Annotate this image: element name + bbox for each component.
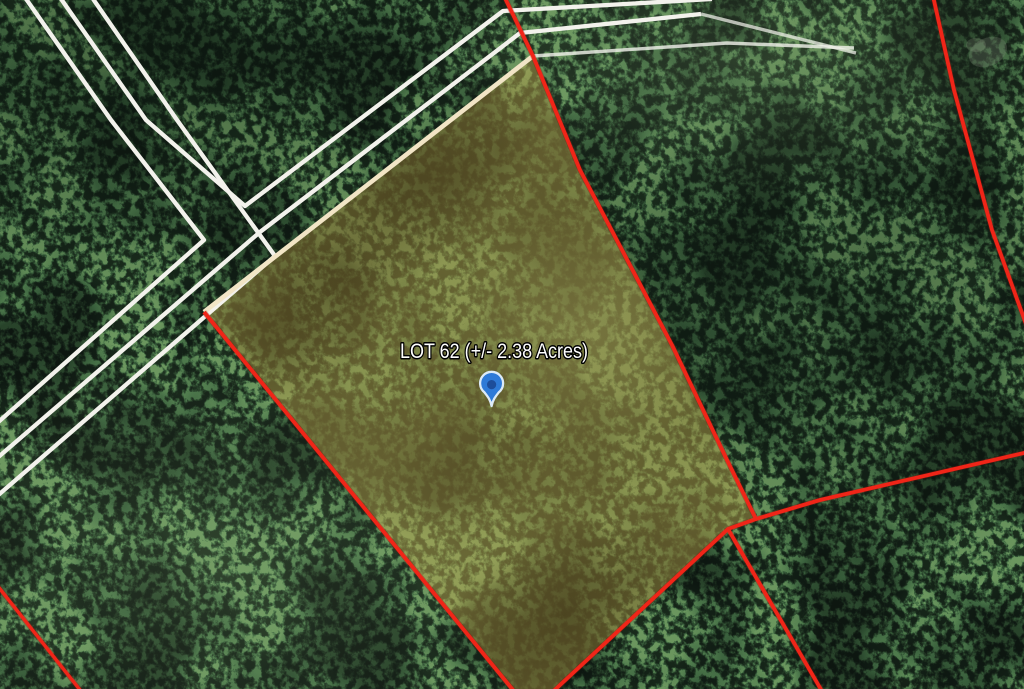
svg-text:LOT 62 (+/- 2.38 Acres): LOT 62 (+/- 2.38 Acres): [400, 339, 588, 363]
